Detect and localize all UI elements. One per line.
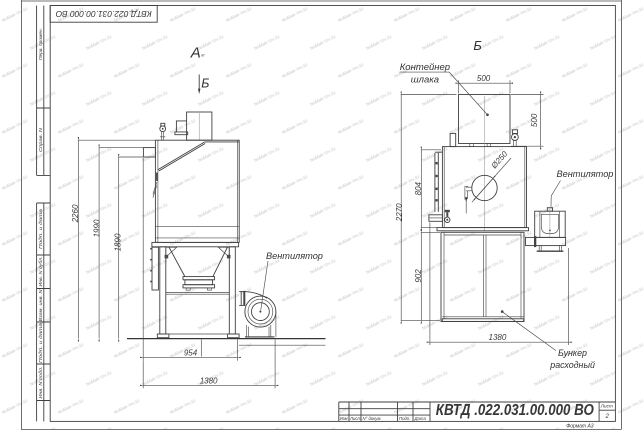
svg-text:Инв. N подл.: Инв. N подл. bbox=[38, 367, 43, 399]
svg-text:500: 500 bbox=[530, 113, 539, 127]
svg-text:902: 902 bbox=[414, 269, 423, 283]
svg-text:1380: 1380 bbox=[489, 333, 507, 342]
svg-text:804: 804 bbox=[414, 181, 423, 195]
svg-text:Изм: Изм bbox=[340, 416, 348, 421]
svg-text:954: 954 bbox=[184, 348, 198, 357]
svg-text:Вентилятор: Вентилятор bbox=[557, 169, 614, 179]
svg-text:Бункер: Бункер bbox=[558, 348, 587, 358]
svg-text:Подп. и дата: Подп. и дата bbox=[38, 208, 43, 249]
svg-text:Б: Б bbox=[473, 38, 482, 53]
svg-text:Лист: Лист bbox=[600, 403, 613, 408]
svg-text:А: А bbox=[190, 45, 201, 62]
svg-text:КВТД .022.031.00.000 ВО: КВТД .022.031.00.000 ВО bbox=[436, 402, 594, 419]
svg-text:2260: 2260 bbox=[71, 204, 80, 223]
svg-text:Взам. инв. N: Взам. инв. N bbox=[38, 289, 43, 322]
svg-text:2270: 2270 bbox=[395, 203, 404, 222]
svg-text:Подп.: Подп. bbox=[399, 416, 410, 421]
svg-text:Контейнер: Контейнер bbox=[400, 62, 450, 73]
svg-text:Дата: Дата bbox=[414, 416, 427, 421]
svg-text:расходный: расходный bbox=[549, 360, 595, 370]
svg-text:Вентилятор: Вентилятор bbox=[266, 251, 323, 261]
svg-text:2: 2 bbox=[605, 414, 610, 420]
svg-text:Лист: Лист bbox=[349, 416, 361, 421]
svg-text:1890: 1890 bbox=[114, 233, 123, 251]
svg-text:500: 500 bbox=[477, 74, 491, 83]
svg-text:N° докум.: N° докум. bbox=[363, 416, 382, 421]
svg-text:шлака: шлака bbox=[411, 74, 439, 85]
svg-text:Формат А3: Формат А3 bbox=[566, 424, 594, 430]
svg-text:Перв. примен.: Перв. примен. bbox=[38, 28, 43, 60]
svg-text:Б: Б bbox=[201, 76, 209, 90]
svg-text:1990: 1990 bbox=[92, 219, 101, 237]
svg-text:КВТД.022.031.00.000 ВО: КВТД.022.031.00.000 ВО bbox=[56, 9, 152, 18]
svg-text:Справ. N: Справ. N bbox=[38, 127, 43, 152]
svg-text:Подп. и дата: Подп. и дата bbox=[38, 322, 43, 363]
svg-text:Инв. N дубл.: Инв. N дубл. bbox=[38, 257, 43, 287]
svg-text:1380: 1380 bbox=[200, 376, 218, 385]
